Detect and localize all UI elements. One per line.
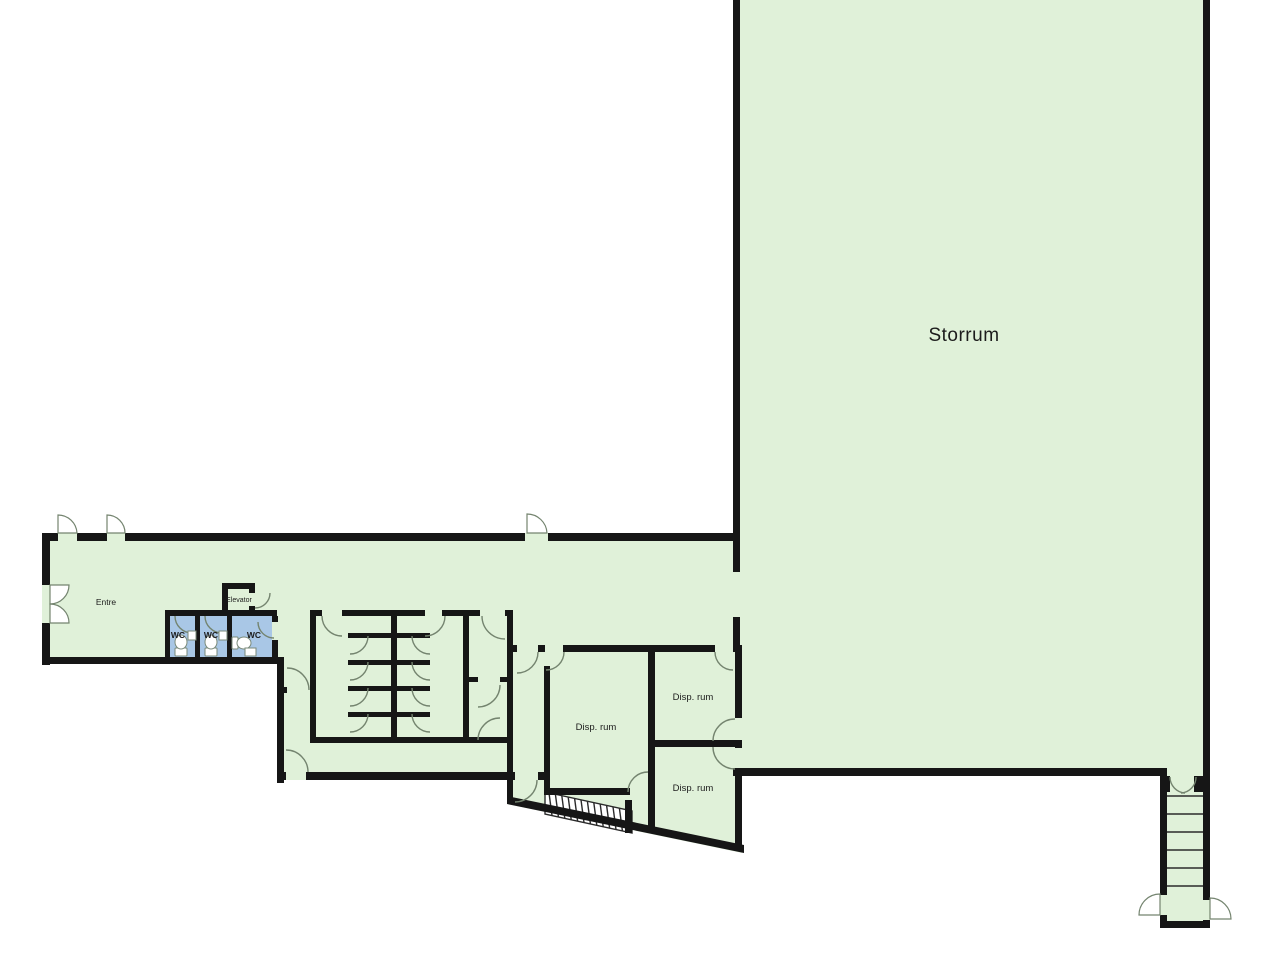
room-label-wc-middle: WC bbox=[204, 630, 218, 640]
room-label-storrum: Storrum bbox=[928, 325, 999, 346]
room-label-disp-rum-lower: Disp. rum bbox=[673, 783, 714, 794]
sink-icon bbox=[219, 631, 227, 640]
room-label-elevator: Elevator bbox=[226, 597, 252, 604]
floorplan-canvas: Storrum Entre Elevator WC WC WC Disp. ru… bbox=[0, 0, 1280, 960]
room-label-wc-right: WC bbox=[247, 630, 261, 640]
sink-icon bbox=[188, 631, 196, 640]
room-label-wc-left: WC bbox=[171, 630, 185, 640]
room-label-disp-rum-main: Disp. rum bbox=[576, 722, 617, 733]
floorplan-page: Storrum Entre Elevator WC WC WC Disp. ru… bbox=[0, 0, 1280, 960]
room-label-entre: Entre bbox=[96, 597, 117, 607]
room-label-disp-rum-upper: Disp. rum bbox=[673, 692, 714, 703]
sink-icon bbox=[245, 648, 256, 656]
